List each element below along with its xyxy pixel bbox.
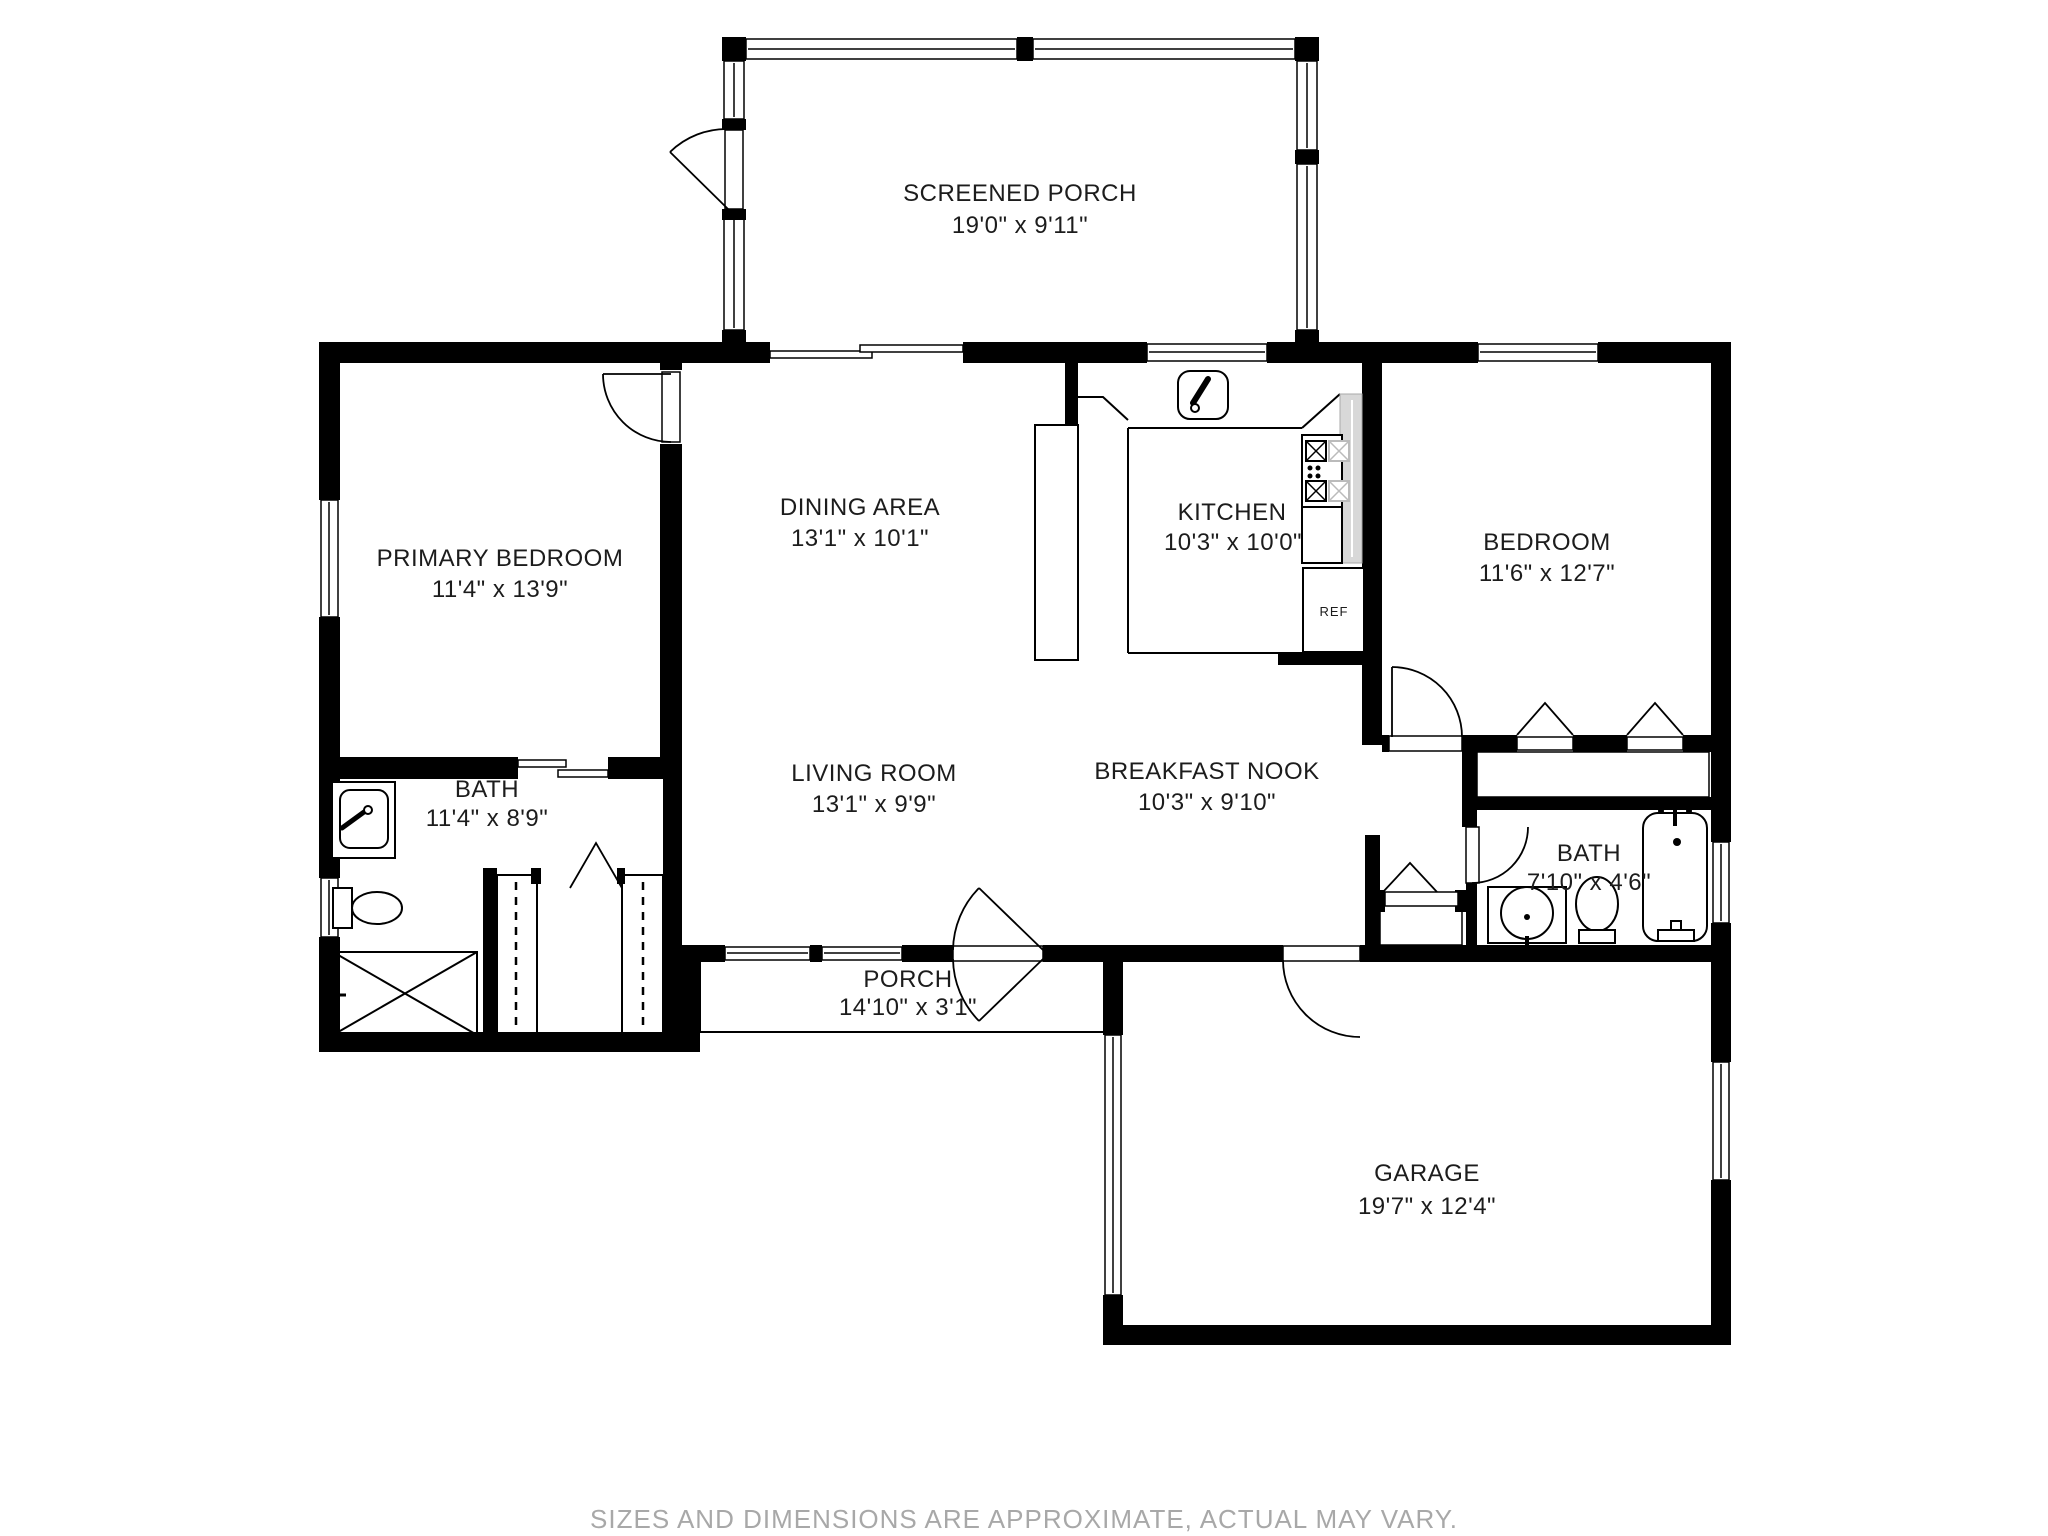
room-label-bath-left: BATH [455,776,519,803]
garage-entry-door [1283,946,1360,1037]
room-dims-porch: 14'10" x 3'1" [839,994,977,1021]
room-label-breakfast-nook: BREAKFAST NOOK [1094,758,1319,785]
kitchen-window [1147,344,1267,361]
bifold-door-icon [1627,703,1683,735]
room-dims-bedroom: 11'6" x 12'7" [1479,560,1615,587]
bifold-door-icon [1517,703,1573,735]
walls [319,342,1731,1345]
primary-bedroom-window [321,500,338,617]
room-label-bath-right: BATH [1557,840,1621,867]
room-label-porch: PORCH [863,966,952,993]
bathtub-icon [1643,799,1707,941]
porch-sliding-door [770,345,963,358]
room-dims-breakfast-nook: 10'3" x 9'10" [1138,789,1276,816]
room-dims-primary-bedroom: 11'4" x 13'9" [432,576,568,603]
bath-left-pocket-door [518,760,608,777]
round-sink-icon [1488,887,1566,947]
room-label-screened-porch: SCREENED PORCH [903,180,1137,207]
room-dims-garage: 19'7" x 12'4" [1358,1193,1496,1220]
room-label-living-room: LIVING ROOM [791,760,957,787]
room-dims-dining-area: 13'1" x 10'1" [791,525,929,552]
bath-right-door [1466,827,1528,883]
porch-door [670,129,743,210]
room-dims-bath-right: 7'10" x 4'6" [1527,869,1651,896]
living-room-window-1 [725,947,810,960]
room-dims-living-room: 13'1" x 9'9" [812,791,936,818]
room-dims-screened-porch: 19'0" x 9'11" [952,212,1088,239]
refrigerator-icon: REF [1303,568,1364,652]
primary-bedroom-door [603,372,680,442]
room-dims-kitchen: 10'3" x 10'0" [1164,529,1302,556]
room-dims-bath-left: 11'4" x 8'9" [426,805,549,832]
living-room-window-2 [822,947,902,960]
disclaimer-text: SIZES AND DIMENSIONS ARE APPROXIMATE, AC… [590,1504,1458,1534]
room-label-dining-area: DINING AREA [780,494,940,521]
stove-icon [1302,435,1349,563]
room-label-garage: GARAGE [1374,1160,1480,1187]
garage-window [1713,1062,1729,1180]
bedroom-door [1389,667,1462,751]
bifold-door-icon [1383,863,1437,892]
vanity-sink-icon [332,782,395,858]
toilet-icon [333,888,402,928]
room-label-kitchen: KITCHEN [1178,499,1287,526]
closet-door-icon [570,843,622,888]
refrigerator-label: REF [1320,604,1349,619]
shower-icon [327,952,477,1035]
garage-door [1105,1035,1121,1295]
bath-right-window [1713,842,1729,923]
room-labels: SCREENED PORCH 19'0" x 9'11" PRIMARY BED… [377,180,1651,1220]
bedroom-window [1478,344,1598,361]
room-label-primary-bedroom: PRIMARY BEDROOM [377,545,624,572]
room-label-bedroom: BEDROOM [1483,529,1611,556]
floor-plan: REF [0,0,2048,1536]
dining-cabinet [1035,425,1078,660]
kitchen-sink-icon [1178,371,1228,419]
